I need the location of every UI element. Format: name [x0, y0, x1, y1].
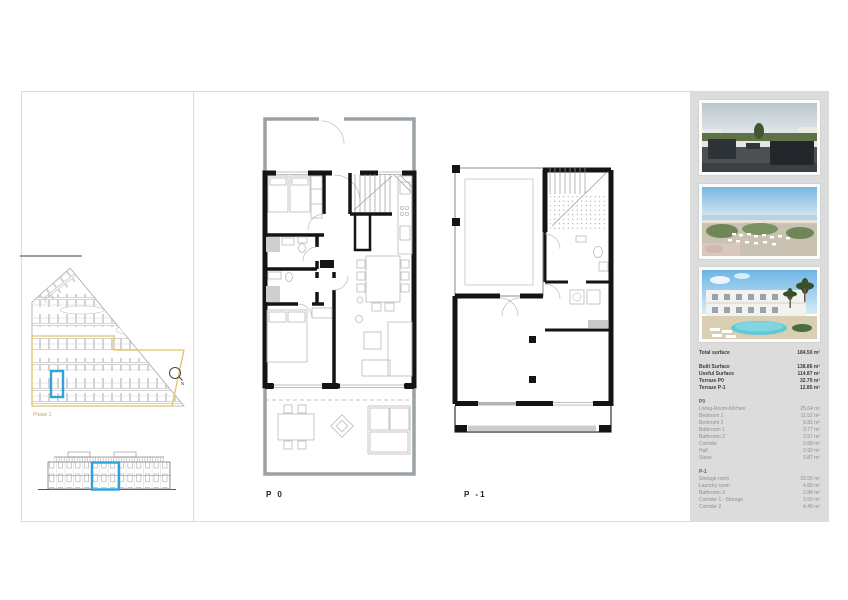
column-divider [193, 91, 194, 522]
phase1-label: Phase 1 [33, 412, 52, 418]
photo-rooftop-terrace [699, 100, 820, 175]
floorplan-p1 [450, 164, 618, 440]
compass-icon [170, 368, 183, 381]
p0-entry-terrace [265, 119, 414, 171]
table-row: Corridor 2 4.40 m² [699, 504, 820, 511]
entry-gate-arc [321, 121, 344, 144]
table-row: Terraze P0 32.79 m² [699, 378, 820, 385]
p1-label: P -1 [464, 490, 487, 499]
site-plan: N Phase 1 [22, 260, 192, 422]
p1-bathroom [576, 236, 608, 271]
table-row: Bathroom 3 3.84 m² [699, 490, 820, 497]
table-row: Bathroom 2 3.57 m² [699, 434, 820, 441]
separator-line [20, 255, 82, 257]
p0-outer-walls [265, 173, 414, 386]
p1-bottom-wall [455, 401, 611, 406]
p0-terrace [265, 389, 414, 474]
p0-openings [265, 170, 414, 390]
floorplan-p0 [262, 114, 417, 480]
elevation-drawing [30, 444, 180, 496]
table-row: Bedroom 2 9.81 m² [699, 420, 820, 427]
photo-residential-pool [699, 267, 820, 342]
table-row: Laundry room 4.80 m² [699, 483, 820, 490]
table-row: Useful Surface 114.87 m² [699, 371, 820, 378]
brochure-page: N Phase 1 [0, 0, 848, 600]
section-title-p1: P-1 [699, 469, 820, 476]
compass-n-label: N [181, 381, 184, 386]
p1-door-arcs [500, 234, 560, 316]
table-row: Terraze P-1 12.85 m² [699, 385, 820, 392]
photo-aerial-coastline [699, 184, 820, 259]
p1-terrace [455, 406, 611, 432]
corridor-wall-stub [320, 260, 334, 268]
table-row: Bathroom 1 3.77 m² [699, 427, 820, 434]
p1-upper-void [452, 165, 543, 296]
table-row: Hall 3.92 m² [699, 448, 820, 455]
table-row: Living-Room-Kitchen 25.64 m² [699, 406, 820, 413]
surface-table: Total surface 184.50 m² Built Surface 13… [699, 350, 820, 511]
p1-stairs [550, 168, 607, 230]
table-row: Corridor 2.68 m² [699, 441, 820, 448]
kitchen-island [355, 214, 370, 250]
building-facade [48, 452, 170, 489]
section-title-p0: P0 [699, 399, 820, 406]
table-row: Bedroom 1 11.52 m² [699, 413, 820, 420]
p0-label: P 0 [266, 490, 284, 499]
p1-columns [529, 336, 536, 383]
p0-interior-walls [265, 173, 392, 386]
info-panel: Total surface 184.50 m² Built Surface 13… [690, 91, 829, 522]
p0-terrace-furniture [278, 405, 410, 454]
table-row: Storage room 33.55 m² [699, 476, 820, 483]
p1-laundry [570, 290, 608, 328]
table-row: Corridor 1 - Storage 3.50 m² [699, 497, 820, 504]
p0-stairs [354, 174, 412, 212]
table-row: Total surface 184.50 m² [699, 350, 820, 357]
table-row: Built Surface 138.86 m² [699, 364, 820, 371]
table-row: Stairs 3.87 m² [699, 455, 820, 462]
